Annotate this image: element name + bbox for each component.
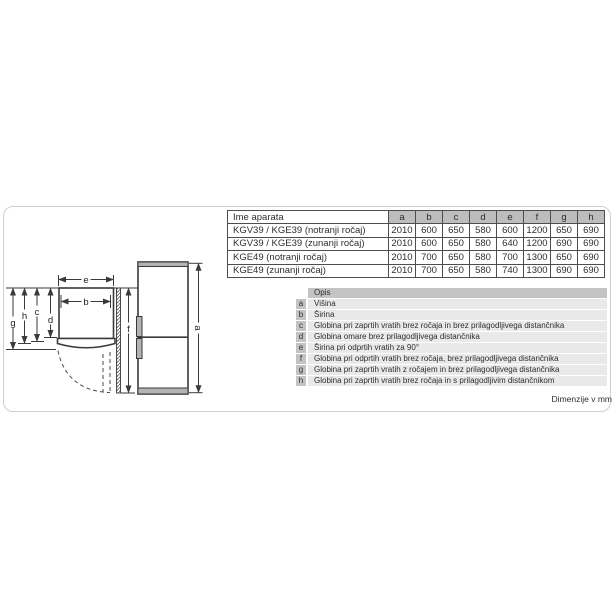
top-view-door bbox=[58, 339, 116, 348]
value-cell: 580 bbox=[470, 224, 497, 237]
legend-key: g bbox=[296, 365, 306, 375]
legend-desc: Širina bbox=[308, 310, 607, 320]
legend-row: b Širina bbox=[296, 310, 607, 320]
legend-desc: Globina pri zaprtih vratih brez ročaja i… bbox=[308, 376, 607, 386]
dim-header-b: b bbox=[416, 211, 443, 224]
dimension-diagram: g h c d e b f bbox=[0, 200, 215, 415]
value-cell: 740 bbox=[497, 264, 524, 277]
value-cell: 2010 bbox=[389, 237, 416, 250]
model-name-cell: KGV39 / KGE39 (zunanji ročaj) bbox=[228, 237, 389, 250]
dimension-line-a: a bbox=[189, 263, 203, 392]
legend-key: b bbox=[296, 310, 306, 320]
value-cell: 700 bbox=[416, 264, 443, 277]
value-cell: 690 bbox=[578, 237, 605, 250]
legend-key: c bbox=[296, 321, 306, 331]
value-cell: 690 bbox=[551, 264, 578, 277]
value-cell: 600 bbox=[497, 224, 524, 237]
value-cell: 690 bbox=[551, 237, 578, 250]
value-cell: 690 bbox=[578, 224, 605, 237]
legend: Opis a Višina b Širina c Globina pri zap… bbox=[296, 288, 607, 387]
dim-label-c: c bbox=[35, 307, 40, 318]
value-cell: 650 bbox=[443, 264, 470, 277]
units-footnote: Dimenzije v mm bbox=[450, 394, 612, 404]
value-cell: 650 bbox=[443, 251, 470, 264]
dim-label-h: h bbox=[22, 311, 27, 322]
dim-label-g: g bbox=[10, 318, 15, 329]
legend-header-label: Opis bbox=[308, 288, 607, 298]
legend-row: f Globina pri odprtih vratih brez ročaja… bbox=[296, 354, 607, 364]
dim-header-c: c bbox=[443, 211, 470, 224]
value-cell: 1200 bbox=[524, 237, 551, 250]
dim-header-e: e bbox=[497, 211, 524, 224]
spec-table-row: KGV39 / KGE39 (notranji ročaj) 2010 600 … bbox=[228, 224, 605, 237]
value-cell: 2010 bbox=[389, 251, 416, 264]
legend-row: d Globina omare brez prilagodljivega dis… bbox=[296, 332, 607, 342]
value-cell: 650 bbox=[551, 251, 578, 264]
legend-desc: Širina pri odprtih vratih za 90° bbox=[308, 343, 607, 353]
value-cell: 640 bbox=[497, 237, 524, 250]
legend-row: c Globina pri zaprtih vratih brez ročaja… bbox=[296, 321, 607, 331]
fridge-side-view bbox=[137, 262, 189, 394]
legend-row: a Višina bbox=[296, 299, 607, 309]
model-name-cell: KGE49 (zunanji ročaj) bbox=[228, 264, 389, 277]
value-cell: 1300 bbox=[524, 264, 551, 277]
legend-desc: Globina pri odprtih vratih brez ročaja, … bbox=[308, 354, 607, 364]
value-cell: 700 bbox=[416, 251, 443, 264]
side-view-plinth bbox=[138, 388, 188, 394]
legend-desc: Globina pri zaprtih vratih z ročajem in … bbox=[308, 365, 607, 375]
spec-table: Ime aparata a b c d e f g h KGV39 / KGE3… bbox=[227, 210, 605, 278]
spec-table-header-row: Ime aparata a b c d e f g h bbox=[228, 211, 605, 224]
side-view-body bbox=[138, 262, 188, 394]
value-cell: 690 bbox=[578, 251, 605, 264]
legend-row: e Širina pri odprtih vratih za 90° bbox=[296, 343, 607, 353]
freezer-door-handle bbox=[137, 339, 143, 359]
value-cell: 2010 bbox=[389, 264, 416, 277]
fridge-door-handle bbox=[137, 317, 143, 337]
legend-key: e bbox=[296, 343, 306, 353]
spec-table-row: KGV39 / KGE39 (zunanji ročaj) 2010 600 6… bbox=[228, 237, 605, 250]
value-cell: 650 bbox=[551, 224, 578, 237]
value-cell: 600 bbox=[416, 237, 443, 250]
value-cell: 580 bbox=[470, 237, 497, 250]
dim-header-f: f bbox=[524, 211, 551, 224]
legend-key: f bbox=[296, 354, 306, 364]
legend-row: h Globina pri zaprtih vratih brez ročaja… bbox=[296, 376, 607, 386]
side-view-top-panel bbox=[138, 262, 188, 267]
legend-key: d bbox=[296, 332, 306, 342]
dim-label-a: a bbox=[192, 325, 203, 331]
dim-label-d: d bbox=[48, 315, 53, 326]
spec-table-row: KGE49 (notranji ročaj) 2010 700 650 580 … bbox=[228, 251, 605, 264]
value-cell: 650 bbox=[443, 224, 470, 237]
spec-table-title-cell: Ime aparata bbox=[228, 211, 389, 224]
legend-row: g Globina pri zaprtih vratih z ročajem i… bbox=[296, 365, 607, 375]
value-cell: 580 bbox=[470, 251, 497, 264]
value-cell: 1300 bbox=[524, 251, 551, 264]
model-name-cell: KGE49 (notranji ročaj) bbox=[228, 251, 389, 264]
legend-desc: Višina bbox=[308, 299, 607, 309]
legend-desc: Globina pri zaprtih vratih brez ročaja i… bbox=[308, 321, 607, 331]
door-swing-arc bbox=[58, 351, 110, 393]
value-cell: 700 bbox=[497, 251, 524, 264]
legend-header: Opis bbox=[296, 288, 607, 298]
legend-key: a bbox=[296, 299, 306, 309]
value-cell: 600 bbox=[416, 224, 443, 237]
spec-table-row: KGE49 (zunanji ročaj) 2010 700 650 580 7… bbox=[228, 264, 605, 277]
legend-desc: Globina omare brez prilagodljivega dista… bbox=[308, 332, 607, 342]
dim-header-a: a bbox=[389, 211, 416, 224]
top-view-open-door-hatch bbox=[117, 288, 121, 393]
dim-label-e: e bbox=[83, 275, 88, 286]
legend-key: h bbox=[296, 376, 306, 386]
dim-header-d: d bbox=[470, 211, 497, 224]
dim-header-h: h bbox=[578, 211, 605, 224]
dim-header-g: g bbox=[551, 211, 578, 224]
value-cell: 580 bbox=[470, 264, 497, 277]
top-view-cabinet bbox=[59, 288, 114, 339]
value-cell: 650 bbox=[443, 237, 470, 250]
model-name-cell: KGV39 / KGE39 (notranji ročaj) bbox=[228, 224, 389, 237]
dim-label-b: b bbox=[83, 297, 88, 308]
value-cell: 2010 bbox=[389, 224, 416, 237]
dim-label-f: f bbox=[127, 324, 130, 335]
value-cell: 690 bbox=[578, 264, 605, 277]
value-cell: 1200 bbox=[524, 224, 551, 237]
